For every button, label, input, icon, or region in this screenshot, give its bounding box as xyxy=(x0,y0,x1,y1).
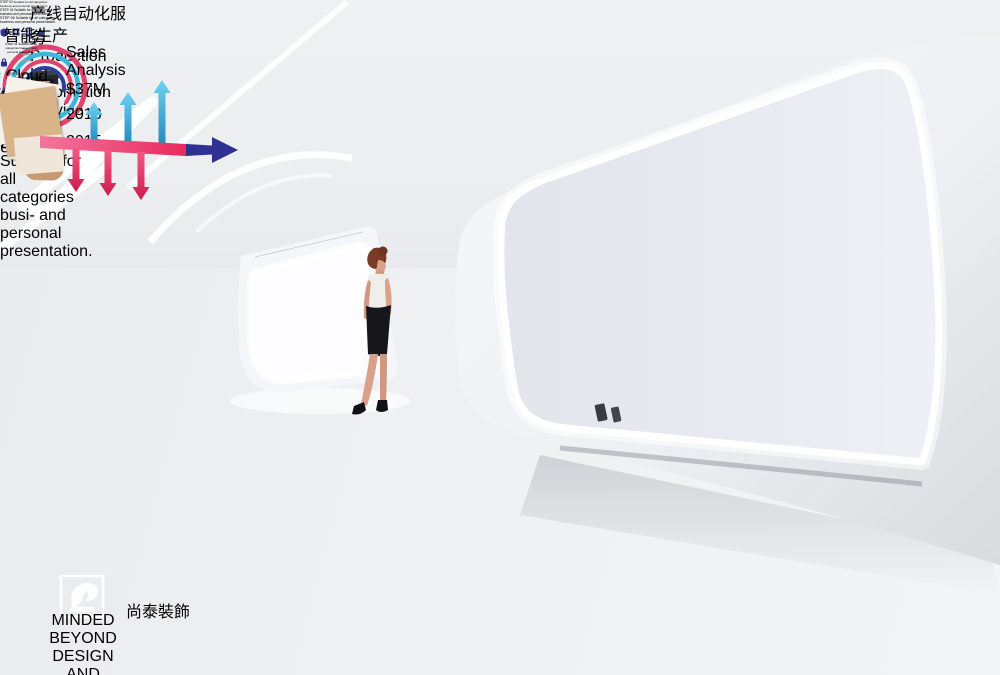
brand-line2: DESIGN xyxy=(18,648,148,666)
black-skirt xyxy=(366,305,391,356)
lock-icon xyxy=(0,58,8,67)
heel-shoe xyxy=(352,402,366,415)
step-label-top: STEP 04 Suitable for all categories busi… xyxy=(0,8,56,16)
woman-figure xyxy=(330,244,406,439)
right-wall-header: 智能生产 xyxy=(4,22,74,48)
layers-icon xyxy=(0,70,2,80)
flow-arrowhead xyxy=(212,137,238,163)
brand-name-cn: 尚泰裝飾 xyxy=(126,598,190,622)
down-arrows xyxy=(68,148,150,200)
watermark: MINDED BEYOND DESIGN AND DECORATION 尚泰裝飾 xyxy=(18,570,338,665)
timeline-infographic xyxy=(36,58,246,233)
window-frame xyxy=(423,222,427,406)
heel-shoe xyxy=(376,400,388,412)
leg xyxy=(361,354,378,406)
flow-navy xyxy=(186,144,212,156)
showroom-render: 产线自动化服务 Production Line Automation Servi… xyxy=(0,0,1000,675)
right-wall-content: 智能生产 Cloud Search xyxy=(0,0,86,261)
step-label-top: STEP 02 Suitable for all categories busi… xyxy=(0,0,56,8)
leg xyxy=(380,354,387,402)
brand-line3: AND DECORATION xyxy=(18,666,148,675)
right-display-wall xyxy=(440,20,1000,620)
right-wall-title: 智能生产 xyxy=(4,22,74,46)
